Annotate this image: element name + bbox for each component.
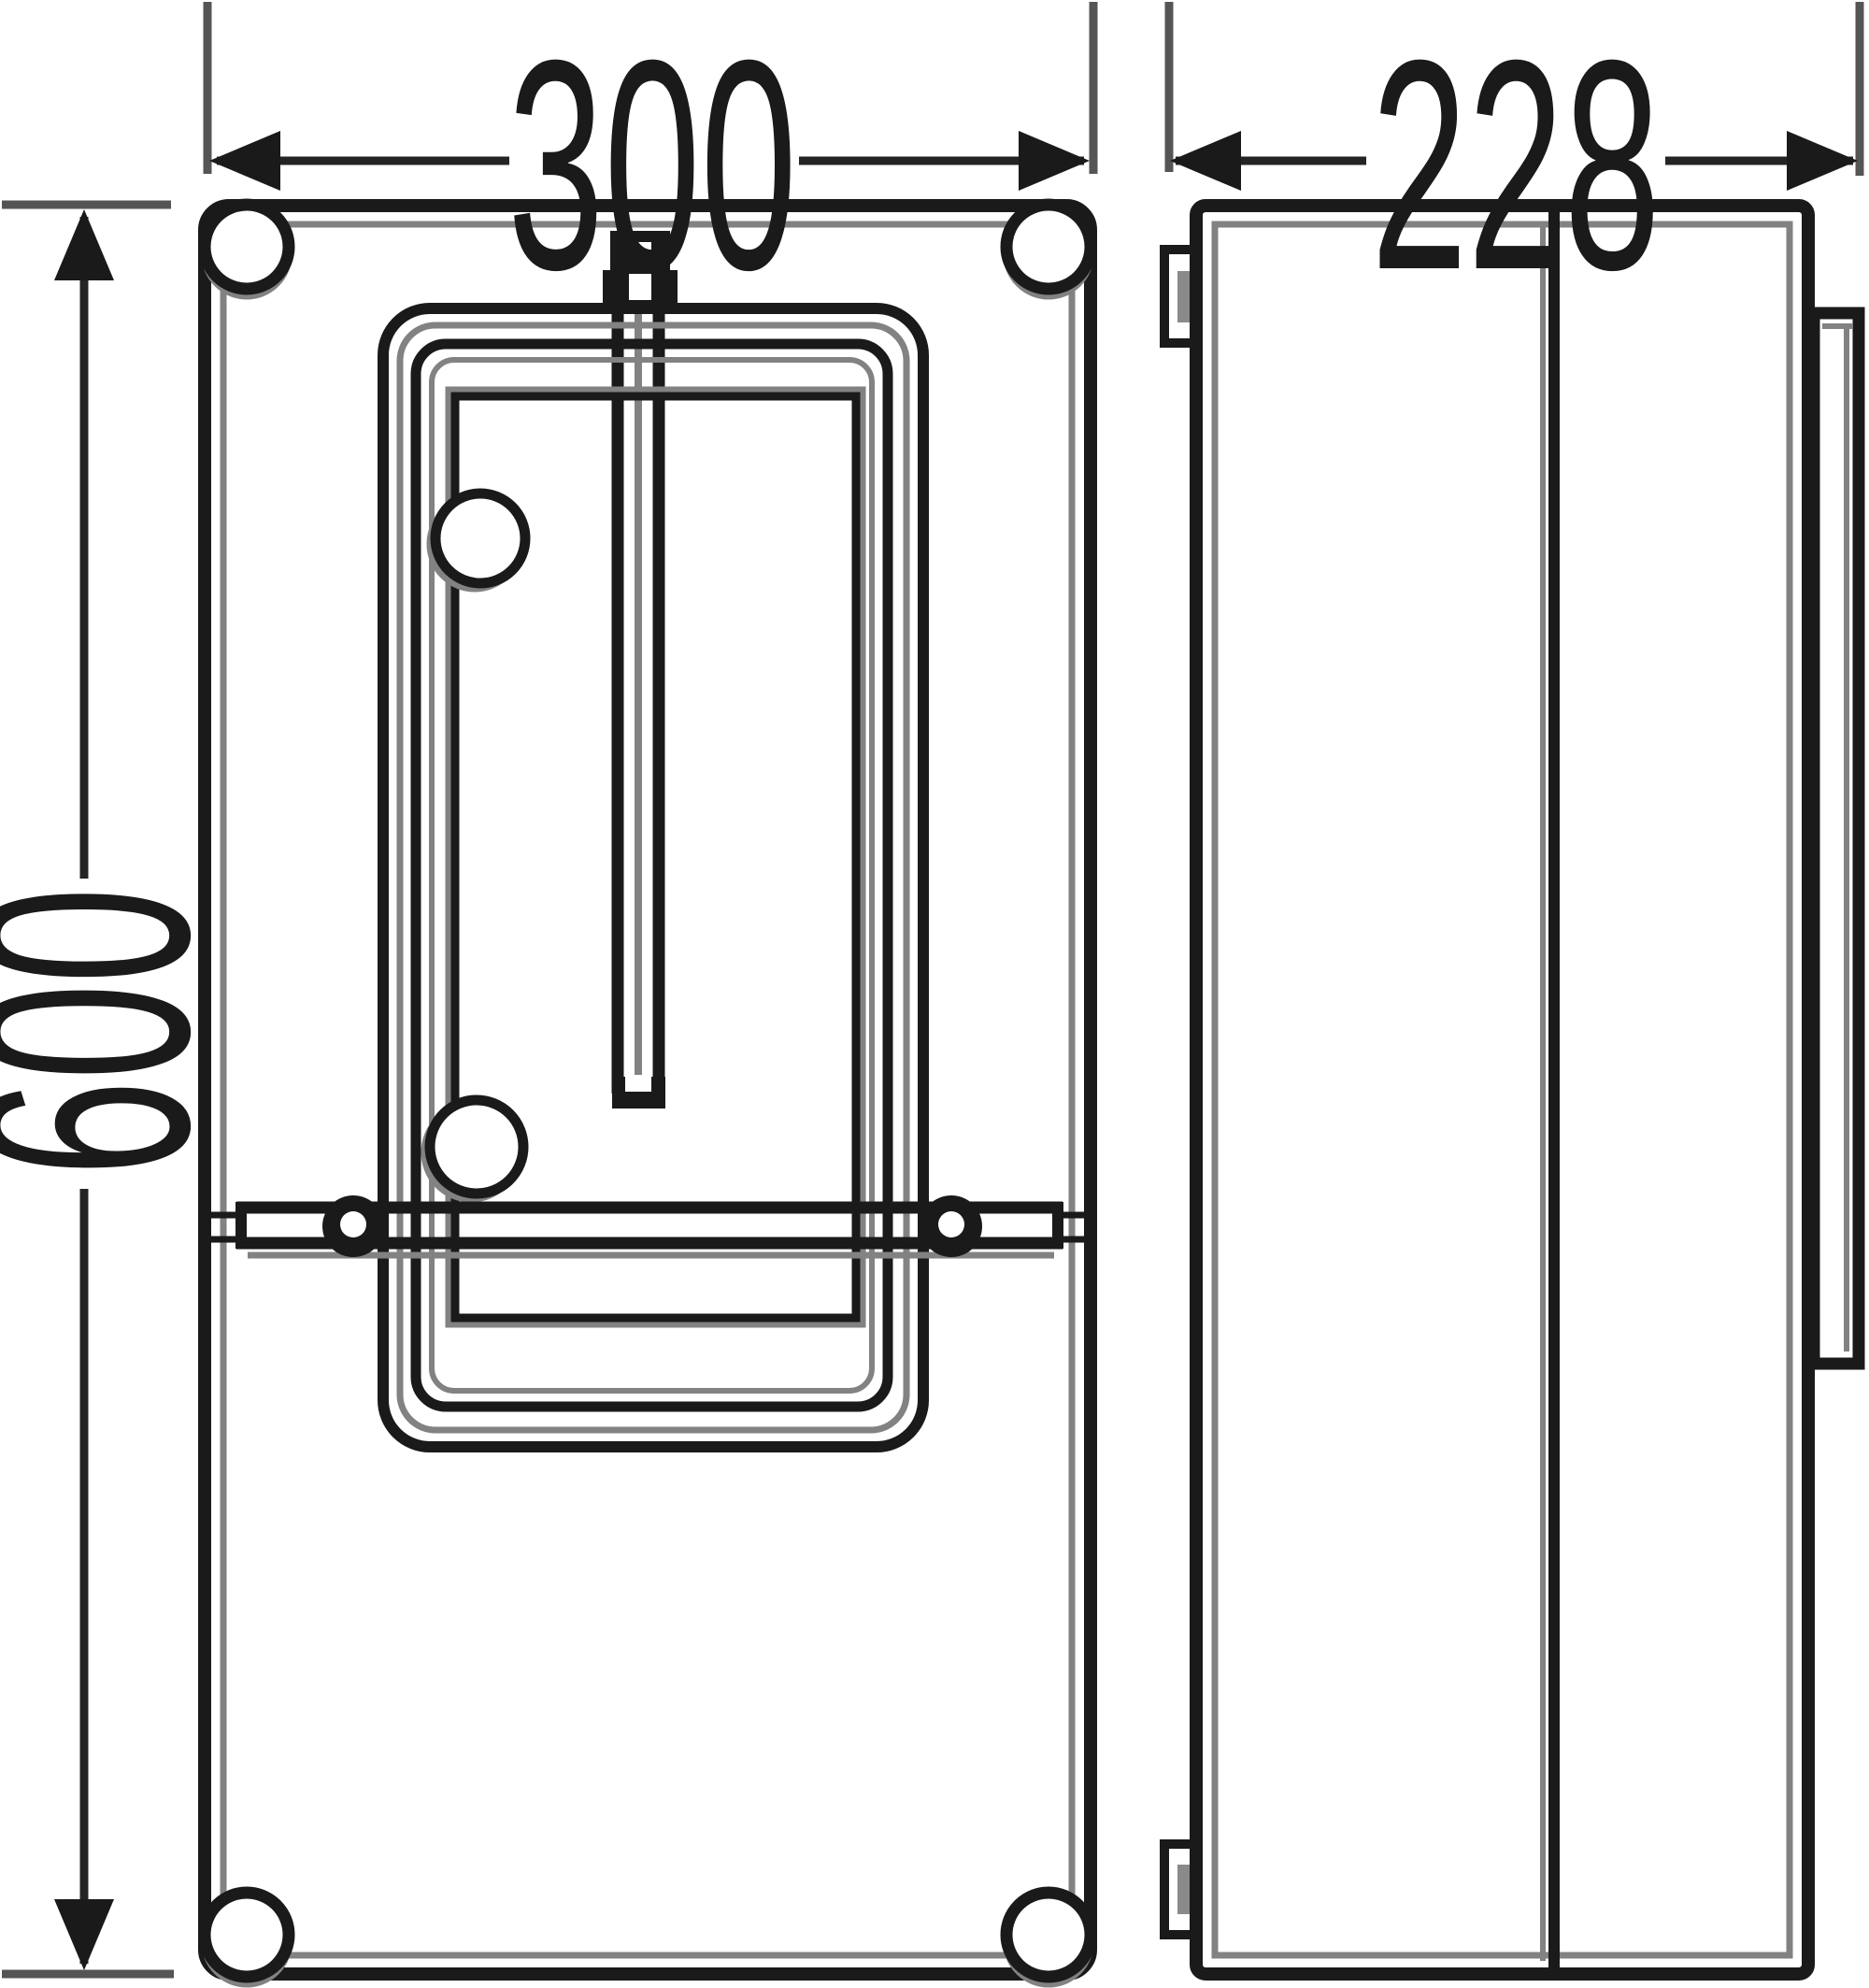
arrow-up-icon [54,209,114,280]
arrow-right-icon [1787,131,1858,191]
arrow-right-icon [1019,131,1090,191]
corner-screw-top-left [205,205,289,296]
side-body [1196,206,1808,1974]
width-dimension-label: 300 [507,0,797,333]
front-view [205,205,1091,1984]
arrow-left-icon [1170,131,1241,191]
cover-flange [1814,313,1859,1364]
sealing-bar-clamp-left [322,1195,384,1257]
side-view [1164,206,1859,1974]
arrow-down-icon [54,1899,114,1970]
depth-dimension-label: 228 [1371,0,1661,333]
corner-screw-bottom-right [1006,1893,1091,1984]
dimension-drawing: 300 228 600 [0,0,1869,1988]
fixing-hole-bottom [424,1100,523,1199]
fixing-hole-top [430,493,525,589]
height-dimension-label: 600 [0,887,252,1177]
corner-screw-top-right [1006,205,1091,296]
arrow-left-icon [209,131,280,191]
corner-screw-bottom-left [205,1893,289,1984]
sealing-bar-clamp-right [920,1195,982,1257]
